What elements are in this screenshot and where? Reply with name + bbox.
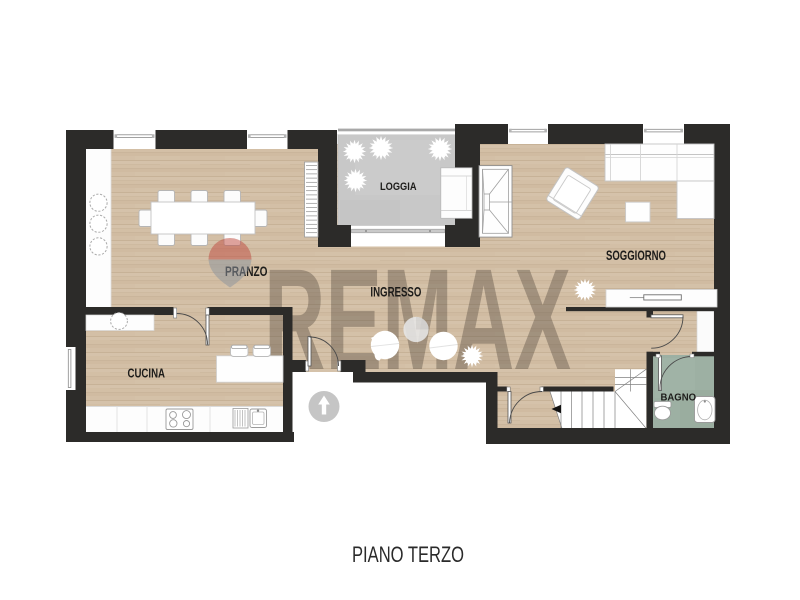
svg-text:INGRESSO: INGRESSO [370,284,421,299]
svg-text:SOGGIORNO: SOGGIORNO [606,248,666,263]
svg-text:CUCINA: CUCINA [128,367,166,381]
svg-text:LOGGIA: LOGGIA [380,181,417,193]
svg-text:BAGNO: BAGNO [661,392,697,404]
svg-text:PIANO TERZO: PIANO TERZO [352,542,464,567]
